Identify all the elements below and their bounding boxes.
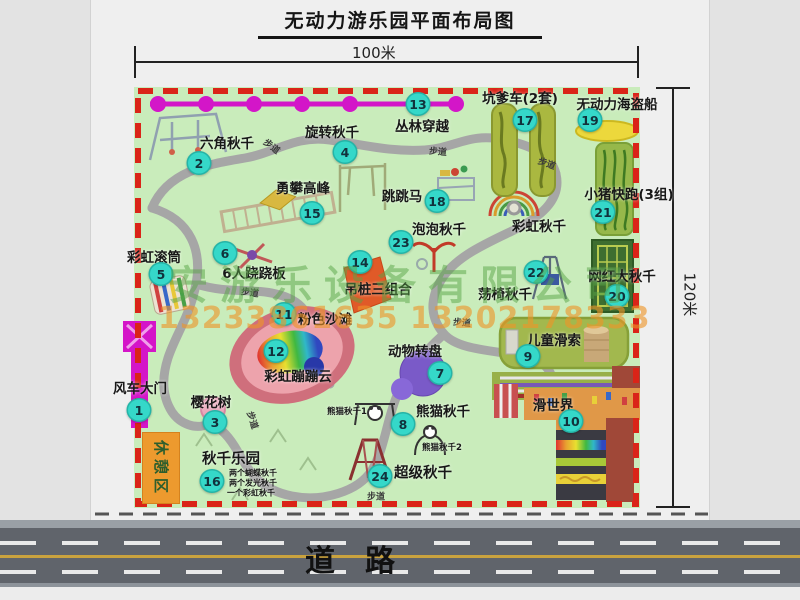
marker-15: 15 xyxy=(300,201,325,225)
marker-2: 2 xyxy=(187,151,212,175)
attraction-label-动物转盘: 动物转盘 xyxy=(388,340,442,360)
marker-1: 1 xyxy=(127,398,152,422)
marker-13: 13 xyxy=(406,92,431,116)
marker-18: 18 xyxy=(425,189,450,213)
poster: 无动力游乐园平面布局图 100米 120米 xyxy=(0,0,800,600)
attraction-label-勇攀高峰: 勇攀高峰 xyxy=(276,177,330,197)
attraction-label-泡泡秋千: 泡泡秋千 xyxy=(412,218,466,238)
rest-area-label: 休憩区 xyxy=(151,439,172,496)
attraction-label-樱花树: 樱花树 xyxy=(191,391,232,411)
title-bar: 无动力游乐园平面布局图 xyxy=(0,5,800,39)
marker-17: 17 xyxy=(513,108,538,132)
marker-12: 12 xyxy=(264,339,289,363)
marker-21: 21 xyxy=(591,200,616,224)
attraction-label-跳跳马: 跳跳马 xyxy=(382,185,423,205)
attraction-label-彩虹秋千: 彩虹秋千 xyxy=(512,215,566,235)
marker-7: 7 xyxy=(428,361,453,385)
attraction-label-六角秋千: 六角秋千 xyxy=(200,132,254,152)
attraction-label-熊猫秋千2: 熊猫秋千2 xyxy=(422,441,462,453)
attraction-label-旋转秋千: 旋转秋千 xyxy=(305,121,359,141)
marker-8: 8 xyxy=(391,412,416,436)
marker-23: 23 xyxy=(389,230,414,254)
attraction-label-丛林穿越: 丛林穿越 xyxy=(395,115,449,135)
rest-area: 休憩区 xyxy=(142,432,180,504)
watermark-phone: 13233861635 13202178333 xyxy=(158,301,651,336)
dimension-right-label: 120米 xyxy=(679,273,700,317)
attraction-label-坑爹车(2套): 坑爹车(2套) xyxy=(482,87,558,107)
marker-4: 4 xyxy=(333,140,358,164)
path-label-7: 步道 xyxy=(367,490,385,503)
attraction-label-一个彩虹秋千: 一个彩虹秋千 xyxy=(227,488,275,499)
road: 道 路 xyxy=(0,520,800,587)
marker-16: 16 xyxy=(200,469,225,493)
marker-3: 3 xyxy=(203,410,228,434)
attraction-label-熊猫秋千1: 熊猫秋千1 xyxy=(327,405,367,417)
attraction-label-彩虹蹦蹦云: 彩虹蹦蹦云 xyxy=(264,365,332,385)
page-title: 无动力游乐园平面布局图 xyxy=(258,5,541,39)
marker-24: 24 xyxy=(368,464,393,488)
below-road-strip xyxy=(0,587,800,600)
road-label: 道 路 xyxy=(190,536,510,580)
attraction-label-超级秋千: 超级秋千 xyxy=(394,462,452,483)
marker-9: 9 xyxy=(516,344,541,368)
road-top-edge xyxy=(0,520,800,528)
dimension-top-label: 100米 xyxy=(352,42,396,63)
marker-19: 19 xyxy=(578,108,603,132)
attraction-label-秋千乐园: 秋千乐园 xyxy=(202,448,260,469)
path-label-2: 步道 xyxy=(428,144,447,159)
attraction-label-风车大门: 风车大门 xyxy=(113,377,167,397)
marker-10: 10 xyxy=(559,409,584,433)
attraction-label-熊猫秋千: 熊猫秋千 xyxy=(416,400,470,420)
